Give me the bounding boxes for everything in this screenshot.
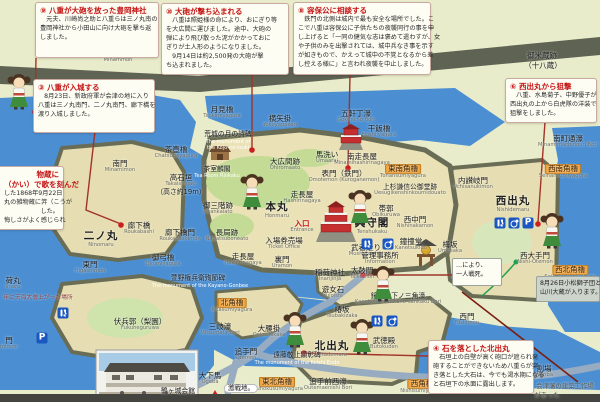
map-label-text: Tea Room Rinkaku [194,173,240,179]
map-label: （十八蔵） [524,62,562,70]
map-label-text: 荒城の月の詩碑 [204,130,252,138]
yae-character-illustration [6,70,32,110]
map-label: 走長屋Hashirinagaya [224,253,261,267]
map-label-romaji: Ninomaru [84,243,119,249]
annotation-line: 悔しさがよく感じられ [4,217,59,226]
map-label: 本丸Honmaru [265,202,289,219]
annotation-line: を大広間に運びました。途中、大砲の [166,26,284,35]
yae-character [370,262,396,306]
map-label: があった [534,392,560,399]
toilet-icon-group [362,239,373,250]
map-label: 門mimon [0,337,18,351]
map-label-romaji: Uramon [272,264,293,270]
map-label-text: （十八蔵） [524,61,562,70]
map-label: 南走長屋Minamihashirinagaya [334,153,390,167]
yae-character [539,209,565,253]
annotation-title: ⑥ 西出丸から狙撃 [510,82,592,92]
annotation-line: 狙撃をしました。 [510,110,592,119]
yae-character-illustration [239,170,265,210]
map-label: 鐘撞堂下ノ三角濠Kanetsukidoshitano-sankaku Bori [355,293,441,306]
map-label-romaji: Yokoyagakari [263,123,297,129]
map-label: 大腰掛Ookoshikake [253,325,286,339]
map-label: 西大手門Nishi-Otemon [517,252,553,266]
map-label: 御米蔵跡 [527,52,557,60]
map-label-romaji: Higashimon [75,269,106,275]
annotation-box: ③ 八重が入城する 8月23日、新政府軍が会津の地に入り八重は三ノ丸南門、二ノ丸… [33,79,155,133]
map-label: 大広間跡Ohiromaato [270,158,301,172]
map-label-romaji: imaru [5,285,20,291]
map-label-romaji: Uchisanukimon [453,185,493,191]
map-note: 8月26日小松獅子団と山川大蔵が入ります。 [536,276,600,302]
annotation-box: ⑨ 八重が大砲を放った豊岡神社 元夫、川崎尚之助と八重らは三ノ丸南の豊岡神社から… [35,2,159,58]
park-icon-group: P [37,333,48,344]
yae-character [282,308,308,352]
map-label-romaji: Minamimachidouri Bori [538,143,598,149]
annotation-line: と石垣下の水面に露出します。 [433,381,529,390]
map-label: 追手前西濠Outemaenishi Bori [304,378,352,392]
map-label: 廊下橋Roukabashi [124,222,154,236]
map-label: 入口Entrance [290,220,313,234]
map-note: …により、一人戦死。 [452,258,502,286]
map-label-text: 萱野権兵衛殉節碑 [171,274,225,282]
wheelchair-icon [509,218,520,229]
map-label-romaji: Ogeba [199,380,222,386]
map-label-romaji: Roukabashimon [159,237,200,243]
map-label: 廊下橋門Roukabashimon [159,229,200,243]
map-label: 三岐濠Mitsumata Bori [200,323,239,337]
map-label: 上杉謙信公御堂跡Uesugikenshinkoumidouato [374,184,446,197]
map-label-text: （高さ約19m） [156,188,205,196]
annotation-line: 弾により飛び散った泥がかかっておに [166,35,284,44]
yae-character [347,186,373,230]
yae-character [239,170,265,214]
annotation-line: ち込まれました。 [166,62,284,71]
parking-icon: P [523,218,534,229]
note-line: 8月26日小松獅子団と [540,279,596,288]
map-label: 大下馬Ogeba [199,372,222,386]
map-label: 高石垣Takaishigaki [165,174,196,188]
map-label: 荒城の月の詩碑 [204,131,252,138]
map-label: 茶壺櫓Chatsubayagura [155,146,198,160]
map-label-romaji: Oyumiyagura [145,262,180,268]
annotation-title: ⑧ 容保公に相談する [298,6,426,16]
annotation-line: しました。 [40,34,154,43]
map-label-romaji: Chatsubayagura [155,154,198,160]
map-label-romaji: Kitasumiyagura [212,308,253,314]
map-label: 梅坂Umesaka [438,241,462,255]
map-label: 西門Nishimon [455,313,479,327]
annotation-line: こで八重は容保公に子供たちの夜襲同行の事を申 [298,25,426,34]
annotation-box: ④ 石を落とした北出丸 石垣上の白壁が高く砲口が遮られ発砲することができないため… [428,340,534,394]
map-label-romaji: Nishimon [455,321,479,327]
annotation-title: ③ 八重が入城する [38,83,150,93]
annotation-line: 八重は三ノ丸南門、二ノ丸南門、廊下橋を [38,102,150,111]
map-label: 西南角櫓Seinansumiyagura [539,164,587,180]
annotation-line: した。 [4,208,59,217]
map-label-text: 本丸 [265,201,288,213]
map-label: The monument of the Kayano-Gonbee [152,284,248,290]
map-label: 御弓櫓Oyumiyagura [145,254,180,268]
annotation-line: 八重、水島菊子、中野優子が [510,92,592,101]
map-label-romaji: Tsukimiyagura [203,114,240,120]
map-label-romaji: Mitsumata Bori [200,331,239,337]
map-label-romaji: Fukuheguruwa [114,326,167,332]
annotation-line: 八重は照姫様の命により、おにぎり等 [166,17,284,26]
park-icon-group: P [523,218,534,229]
map-label-text: The monument of the Kayano-Gonbee [152,283,248,289]
parking-icon: P [37,333,48,344]
map-label-text: 二ノ丸 [84,230,119,242]
wheel-icon-group [383,239,394,250]
map-label-romaji: Ookoshikake [253,333,286,339]
toilet-icon [372,316,383,327]
map-label-romaji: Outemaenishi Bori [304,386,352,392]
map-label-romaji: Hoshiiyagura [362,133,396,139]
map-label-romaji: Umesaka [438,249,462,255]
map-label-text: 会津藩の建築工作場 [536,382,594,390]
map-label: 内讃岐門Uchisanukimon [453,177,493,191]
map-label-text: があった [534,391,560,399]
map-label: 長局跡Nagatsuboneato [206,229,249,243]
annotation-title: 物蔵に [4,170,59,180]
map-label: 五軒丁濠Gokencho Bori [337,110,375,124]
map-label: 荷丸imaru [5,277,20,291]
map-label: The monument of the Keishi Endo [255,361,340,367]
map-label-romaji: Nishidemaru [496,208,531,214]
map-label: 伏兵郭（梨園）Fukuheguruwa [114,318,167,332]
map-label-romaji: Tenshukaku [355,230,390,236]
annotation-line: 鉄門の北側は城内で最も安全な場所でした。こ [298,16,426,25]
annotation-line: 元夫、川崎尚之助と八重らは三ノ丸南の [40,16,154,25]
annotation-line: 9月14日は約2,500発の大砲が撃 [166,53,284,62]
map-label: 横矢掛Yokoyagakari [263,115,297,129]
map-label-text: 御米蔵跡 [527,51,557,60]
map-label: 稲荷神社Inarijinja [315,269,345,283]
annotation-line: 石垣上の白壁が高く砲口が遮られ発 [433,354,529,363]
annotation-line: し控える様に」と言われ夜襲を中止しました。 [298,61,426,70]
toilet-icon [58,308,69,319]
map-label-romaji: Nagatsuboneato [206,237,249,243]
annotation-line: ぎりが土人形のようになりました。 [166,44,284,53]
map-label-romaji: Ticket Office [265,245,303,251]
yae-character [6,70,32,114]
annotation-title: （かい）で歌を刻んだ [4,180,59,190]
toilet-icon-group [58,308,69,319]
map-label: the Kojo-no-tsuki [207,146,249,152]
yae-character-illustration [347,186,373,226]
map-label-romaji: Touhokusumiyagura [251,387,303,393]
map-label: 北角櫓Kitasumiyagura [212,298,253,314]
annotation-box-cutoff: 物蔵に（かい）で歌を刻んだした1868年9月22日丸の雑物蔵に笄（こうがした。悔… [0,166,64,230]
map-label: Tea Room Rinkaku [194,174,240,180]
annotation-box: ⑥ 西出丸から狙撃 八重、水島菊子、中野優子が西出丸の上から白虎隊の洋装で狙撃を… [505,78,597,123]
map-label-text: 西出丸 [496,195,531,207]
annotation-line: 渡り入城しました。 [38,111,150,120]
map-label: 激戦地。 [224,384,258,393]
map-label-romaji: Honmaru [265,214,289,220]
yae-character-illustration [282,308,308,348]
annotation-line: 8月23日、新政府軍が会津の地に入り [38,93,150,102]
annotation-line: 西出丸の上から白虎隊の洋装で [510,101,592,110]
wheelchair-icon [387,316,398,327]
wheel-icon-group [387,316,398,327]
map-label-text: 激戦地。 [224,384,258,393]
wheel-icon-group [509,218,520,229]
map-label: 月見櫓Tsukimiyagura [203,106,240,120]
map-label-romaji: Ohiromaato [270,166,301,172]
map-label-romaji: Omotemon (Kuroganemon) [309,178,380,184]
map-label-text: the Kojo-no-tsuki [207,145,249,151]
map-label-romaji: mimon [0,345,18,351]
annotation-line: 豊岡神社から小田山に向け大砲を撃ち返 [40,25,154,34]
annotation-line: き落とした大石は、今でも渇水期になる [433,372,529,381]
toilet-icon-group [372,316,383,327]
map-label-romaji: Osankaiato [203,210,233,216]
annotation-line: 丸の雑物蔵に笄（こうが [4,199,59,208]
map-label: 年に天海大僧上がった場所 [3,295,73,301]
sign-frame [0,394,600,402]
map-label: 追手門Otemon [235,348,258,362]
castle-map-sign: ⑨ 八重が大砲を放った豊岡神社 元夫、川崎尚之助と八重らは三ノ丸南の豊岡神社から… [0,0,600,402]
wheelchair-icon [383,239,394,250]
annotation-title: ⑩ 大砲が撃ち込まれる [166,7,284,17]
map-label: 鐘撞堂Kanetsukido [395,238,427,252]
map-label: 西中門Nishinakamon [397,216,434,230]
map-label-text: The monument of the Keishi Endo [255,360,340,366]
map-label: 南門Minamimon [105,160,135,174]
map-label-romaji: Yujoishi [322,294,345,300]
annotation-box: ⑧ 容保公に相談する 鉄門の北側は城内で最も安全な場所でした。ここで八重は容保公… [293,2,431,75]
map-label: 二ノ丸Ninomaru [84,231,119,248]
note-line: 一人戦死。 [456,270,498,279]
map-label-romaji: Roukabashi [124,230,154,236]
map-label: 遠藤敬止顕彰碑 [273,352,321,359]
annotation-title: ⑨ 八重が大砲を放った豊岡神社 [40,6,154,16]
map-label: 萱野権兵衛殉節碑 [171,275,225,282]
map-label: 南町通濠Minamimachidouri Bori [538,135,598,149]
map-label-romaji: Tonansumiyagura [380,174,426,180]
map-label: 帯郭Obikuruwa [372,205,400,219]
map-label-romaji: Inarijinja [315,277,345,283]
map-label: 干飯櫓Hoshiiyagura [362,125,396,139]
map-label-text: 遠藤敬止顕彰碑 [273,351,321,359]
map-label-romaji: Kanetsukidoshitano-sankaku Bori [355,300,441,306]
map-label-romaji: Minammon [104,58,133,64]
map-label: 会津藩の建築工作場 [536,383,594,390]
map-label: 裏門Uramon [272,256,293,270]
yae-character-illustration [370,262,396,302]
yae-character-illustration [539,209,565,249]
map-label-text: 鶴ヶ城会館 [161,387,195,395]
annotation-line: や子供のみを出撃されては、城中兵なき事を示す [298,43,426,52]
map-label: （高さ約19m） [156,189,205,196]
map-label: 東北角櫓Touhokusumiyagura [251,377,303,393]
map-label-romaji: Seinansumiyagura [539,174,587,180]
map-label-romaji: Kanetsukido [395,246,427,252]
map-label-text: 年に天海大僧上がった場所 [3,295,73,301]
annotation-line: 砲することができないため八重らが突 [433,363,529,372]
map-label-romaji: Minamihashirinagaya [334,161,390,167]
map-label: 表門（鉄門）Omotemon (Kuroganemon) [309,170,380,184]
toilet-icon [362,239,373,250]
annotation-title: ④ 石を落とした北出丸 [433,344,529,354]
map-label-romaji: Otemon [235,356,258,362]
map-label-text: 茶室麟閣 [203,165,230,173]
map-label-romaji: Obikuruwa [372,213,400,219]
annotation-line: が如きもので、かえって城中の不覚となるから差 [298,52,426,61]
note-line: …により、 [456,261,498,270]
toilet-icon [495,218,506,229]
note-line: 山川大蔵が入ります。 [540,288,596,297]
map-label-romaji: Entrance [290,228,313,234]
map-label: 東門Higashimon [75,261,106,275]
map-label: 遊女石Yujoishi [322,286,345,300]
map-label: 鶴ヶ城会館 [161,388,195,395]
map-label-romaji: Hashirinagaya [224,261,261,267]
annotation-box: ⑩ 大砲が撃ち込まれる 八重は照姫様の命により、おにぎり等を大広間に運びました。… [161,3,289,75]
map-label-romaji: Uesugikenshinkoumidouato [374,191,446,197]
map-label: 御三階跡Osankaiato [203,202,233,216]
map-label-romaji: Minamimon [105,168,135,174]
toilet-icon-group [495,218,506,229]
annotation-line: し上げると「一同の健気な志は褒めて遣わすが、女 [298,34,426,43]
map-label-romaji: Nishinakamon [397,224,434,230]
map-label: 入場券売場Ticket Office [265,237,303,251]
map-label: 西出丸Nishidemaru [496,196,531,213]
annotation-line: した1868年9月22日 [4,190,59,199]
